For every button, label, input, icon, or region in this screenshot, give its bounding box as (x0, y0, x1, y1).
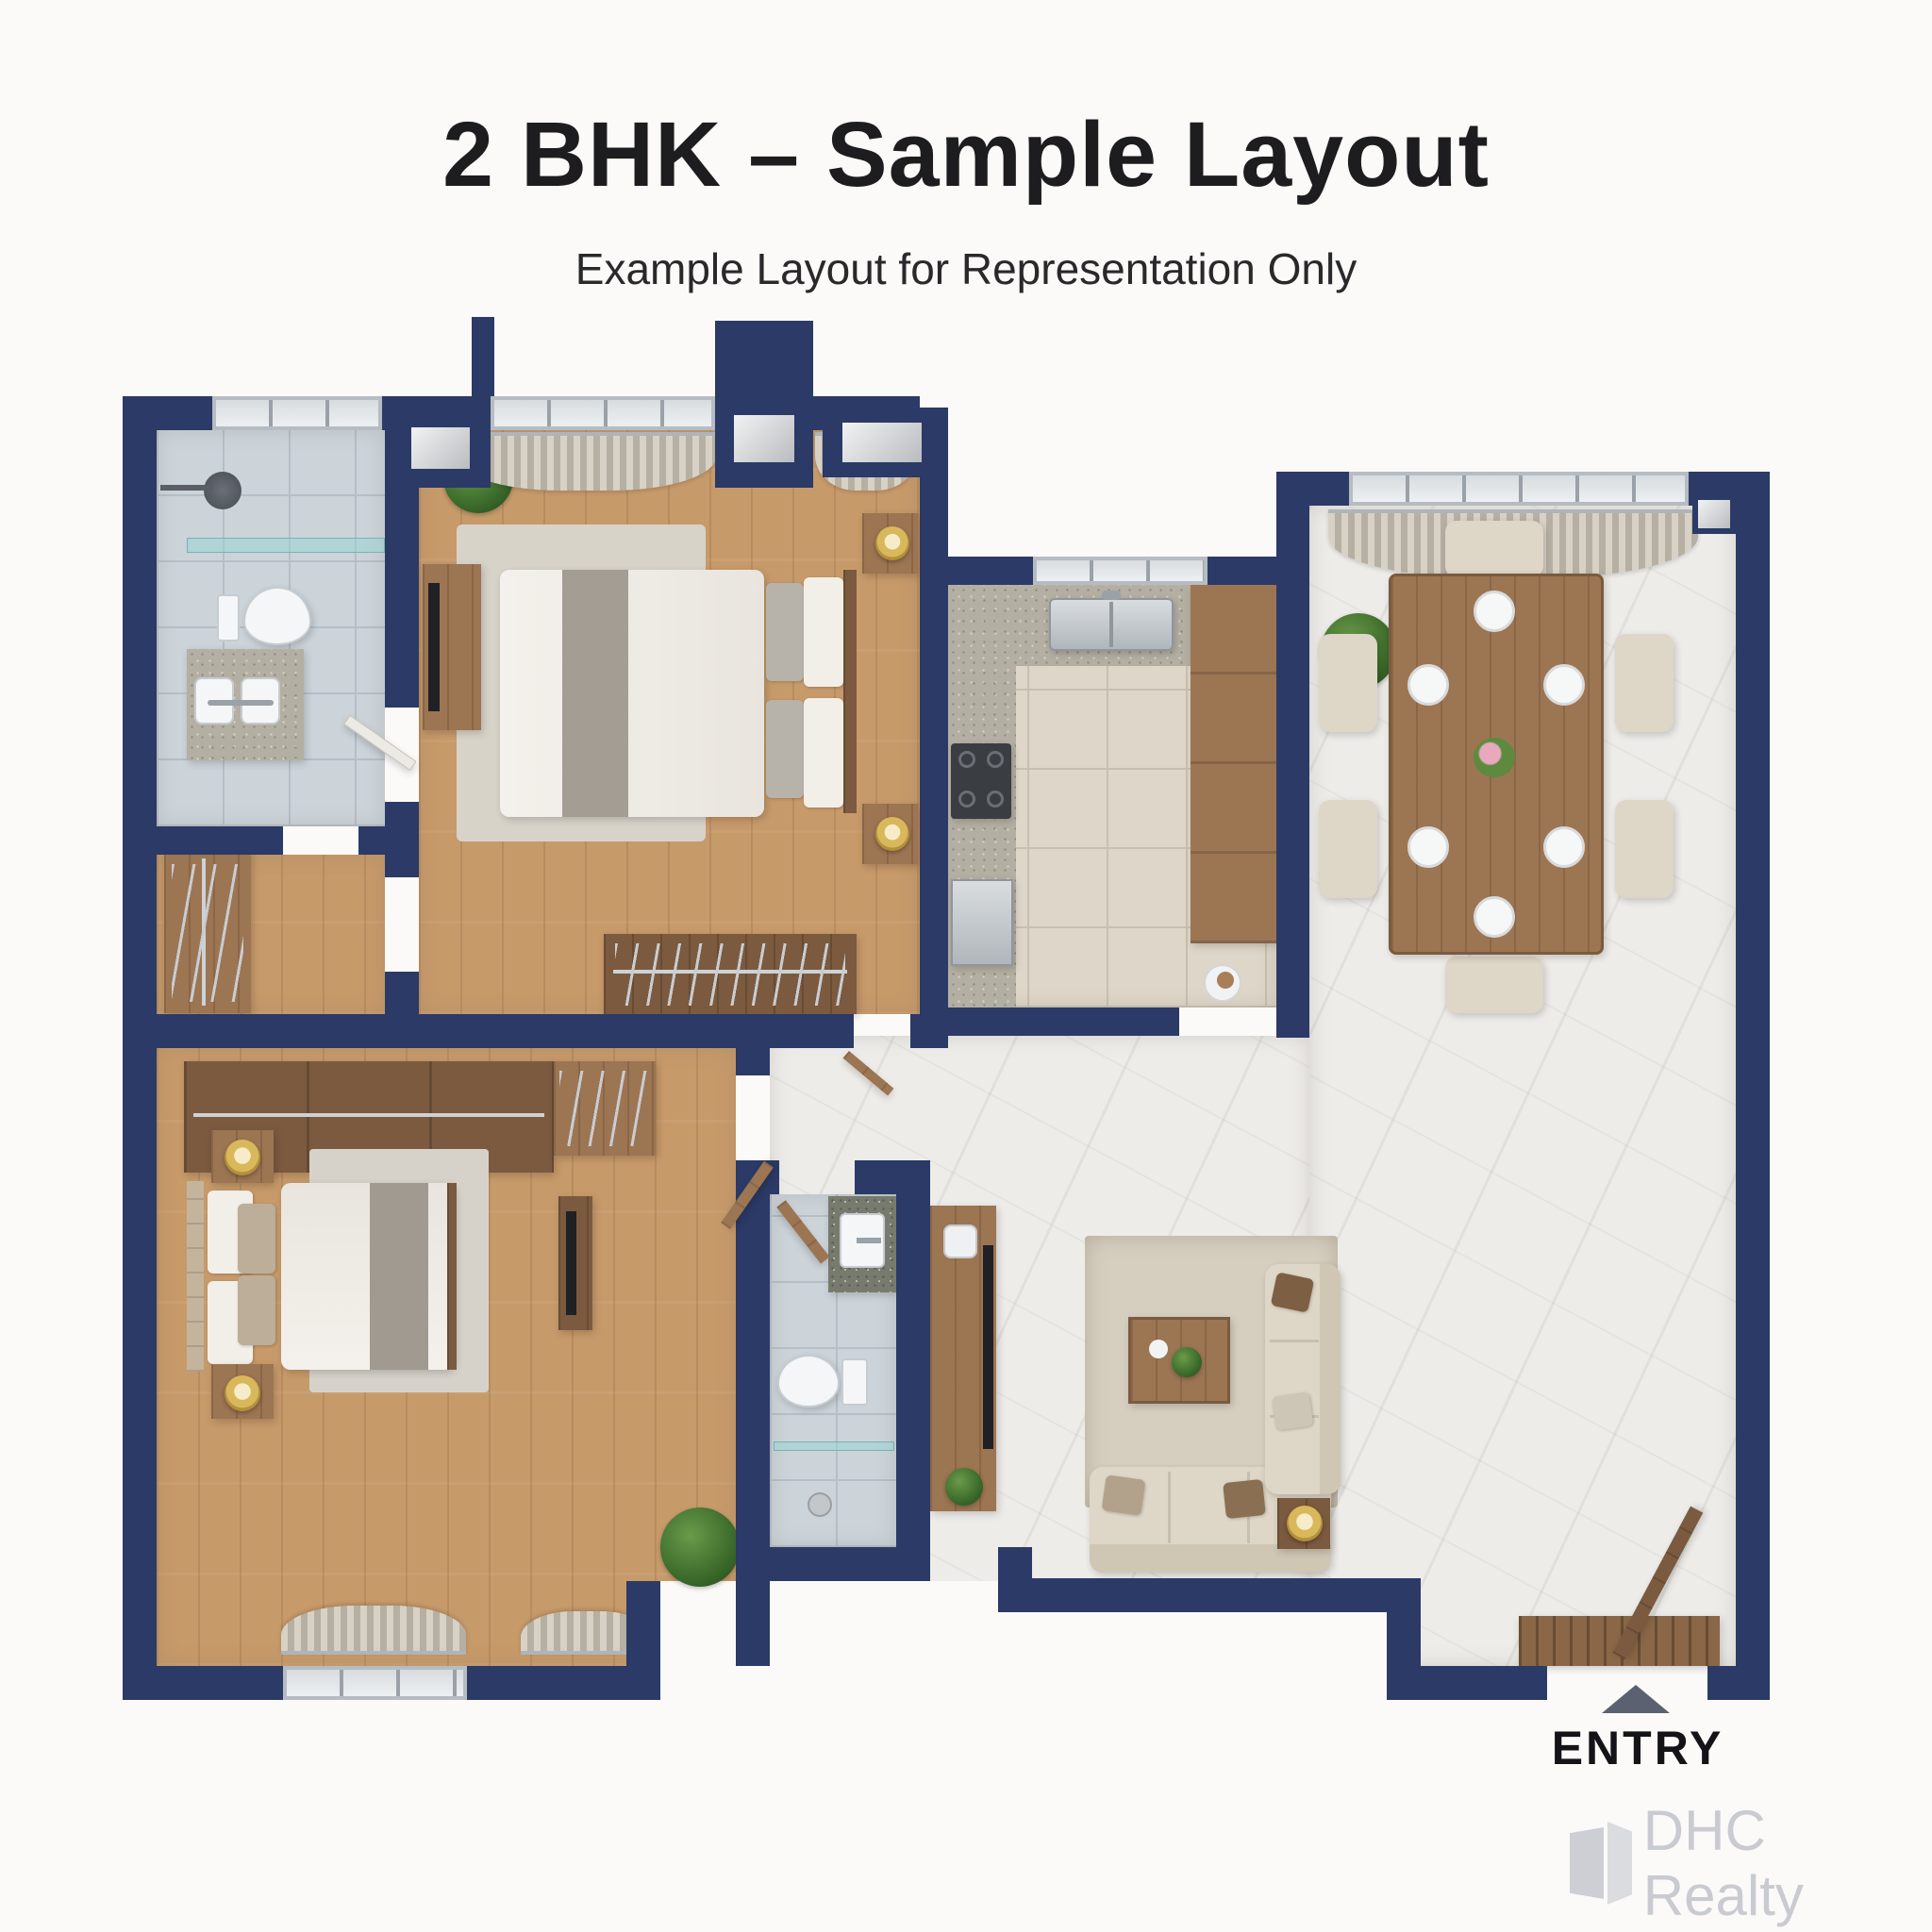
throw-pillow (1102, 1474, 1146, 1515)
plant (660, 1507, 740, 1587)
throw-pillow (1223, 1479, 1266, 1519)
wall-bottom-living (998, 1578, 1387, 1612)
dining-chair (1615, 800, 1674, 898)
duct-block (715, 321, 813, 488)
shower-arm (160, 485, 213, 491)
table-lamp-icon (225, 1140, 260, 1175)
brand-watermark: DHC Realty (1570, 1798, 1932, 1928)
bed-footboard (447, 1183, 457, 1370)
throw-pillow (1272, 1391, 1314, 1430)
waste-bin (808, 1492, 832, 1517)
wall-master-right (736, 1048, 770, 1075)
sink-divider (1109, 602, 1113, 647)
dining-chair (1319, 800, 1377, 898)
wall-bottom-entry-right (1707, 1666, 1770, 1700)
window (491, 396, 715, 430)
hanging-clothes (559, 1071, 650, 1146)
bed-throw-blanket (370, 1183, 428, 1370)
dinner-plate (1543, 664, 1585, 706)
sofa-cushion-divider (1168, 1472, 1171, 1543)
brand-name: DHC Realty (1643, 1798, 1932, 1928)
dining-chair (1445, 521, 1543, 577)
entry-arrow-icon (1602, 1685, 1670, 1713)
wall-master-right (736, 1170, 770, 1666)
burner (987, 791, 1004, 808)
wall-middle (910, 1014, 948, 1048)
tv-screen (983, 1245, 993, 1449)
speaker-icon (943, 1224, 977, 1258)
bed-headboard (187, 1181, 204, 1372)
wall-left (123, 396, 157, 1700)
sink-faucet (1102, 591, 1121, 600)
curtains (281, 1606, 466, 1655)
shower-head-icon (204, 472, 241, 509)
wall-bathroom2-bottom (736, 1547, 930, 1581)
window (1033, 557, 1207, 585)
flower-centerpiece (1474, 738, 1515, 777)
entry-label: ENTRY (1538, 1721, 1738, 1775)
dining-chair (1615, 634, 1674, 732)
basin-faucet (857, 1238, 881, 1243)
table-lamp-icon (1287, 1506, 1323, 1541)
table-lamp-icon (225, 1375, 260, 1411)
wall-bath1-dressing (358, 826, 385, 855)
dining-chair (1445, 957, 1543, 1013)
duct-opening (842, 423, 922, 462)
bed-headboard (843, 570, 857, 813)
window (212, 396, 382, 430)
tv-screen (566, 1211, 576, 1315)
hanging-clothes (615, 943, 845, 1006)
bed-pillow (238, 1275, 275, 1345)
coffee-cup (1217, 972, 1234, 989)
exterior-notch (660, 1581, 1032, 1700)
wall-bath1-dressing (157, 826, 283, 855)
wall-bedroom1-kitchen (920, 430, 948, 1048)
toilet-tank (841, 1358, 868, 1406)
sofa-backrest (1320, 1264, 1341, 1494)
exterior-notch (1032, 1612, 1387, 1700)
kitchen-tall-cabinets (1191, 585, 1276, 943)
dinner-plate (1543, 826, 1585, 868)
wall-kitchen-bottom (948, 1008, 1179, 1036)
dinner-plate (1474, 896, 1515, 938)
toilet-tank (217, 594, 240, 641)
decor-bowl (1149, 1340, 1168, 1358)
vanity-faucet (208, 700, 274, 706)
burner (958, 751, 975, 768)
plant (945, 1468, 983, 1506)
dinner-plate (1474, 591, 1515, 632)
floor-plan-poster: 2 BHK – Sample Layout Example Layout for… (0, 0, 1932, 1932)
plant (1172, 1347, 1202, 1377)
dinner-plate (1407, 664, 1449, 706)
bed-pillow (238, 1204, 275, 1274)
bed-pillow (766, 583, 804, 681)
wall-bath1-bedroom1 (385, 802, 419, 877)
bed-duvet (281, 1183, 455, 1370)
table-lamp-icon (875, 526, 909, 560)
duct-opening (734, 415, 794, 462)
wall-right (1736, 472, 1770, 1700)
bed-pillow (804, 698, 843, 808)
floor-plan (0, 0, 1932, 1932)
window (283, 1666, 467, 1700)
wall-step (626, 1581, 660, 1700)
bed-duvet (500, 570, 764, 817)
window (1349, 472, 1689, 506)
dining-chair (1319, 634, 1377, 732)
building-door-icon (1570, 1822, 1630, 1905)
dinner-plate (1407, 826, 1449, 868)
curtains (455, 432, 717, 491)
burner (987, 751, 1004, 768)
wall-bathroom2-right (896, 1160, 930, 1581)
bed-throw-blanket (562, 570, 628, 817)
wardrobe-handle-rail (193, 1113, 544, 1117)
refrigerator (951, 879, 1013, 966)
sofa-cushion-divider (1270, 1340, 1319, 1342)
toilet (777, 1355, 840, 1407)
wall-kitchen-dining (1276, 472, 1309, 1038)
tv-screen (428, 583, 440, 711)
burner (958, 791, 975, 808)
bed-pillow (804, 577, 843, 687)
bed-pillow (766, 700, 804, 798)
duct-opening (411, 427, 470, 469)
table-lamp-icon (875, 817, 909, 851)
glass-shelf (774, 1441, 894, 1451)
duct-opening (1692, 494, 1736, 534)
wall-middle (123, 1014, 854, 1048)
hanging-clothes (172, 864, 243, 1002)
shower-glass-partition (187, 538, 385, 553)
wall-bottom-entry-left (1387, 1666, 1547, 1700)
